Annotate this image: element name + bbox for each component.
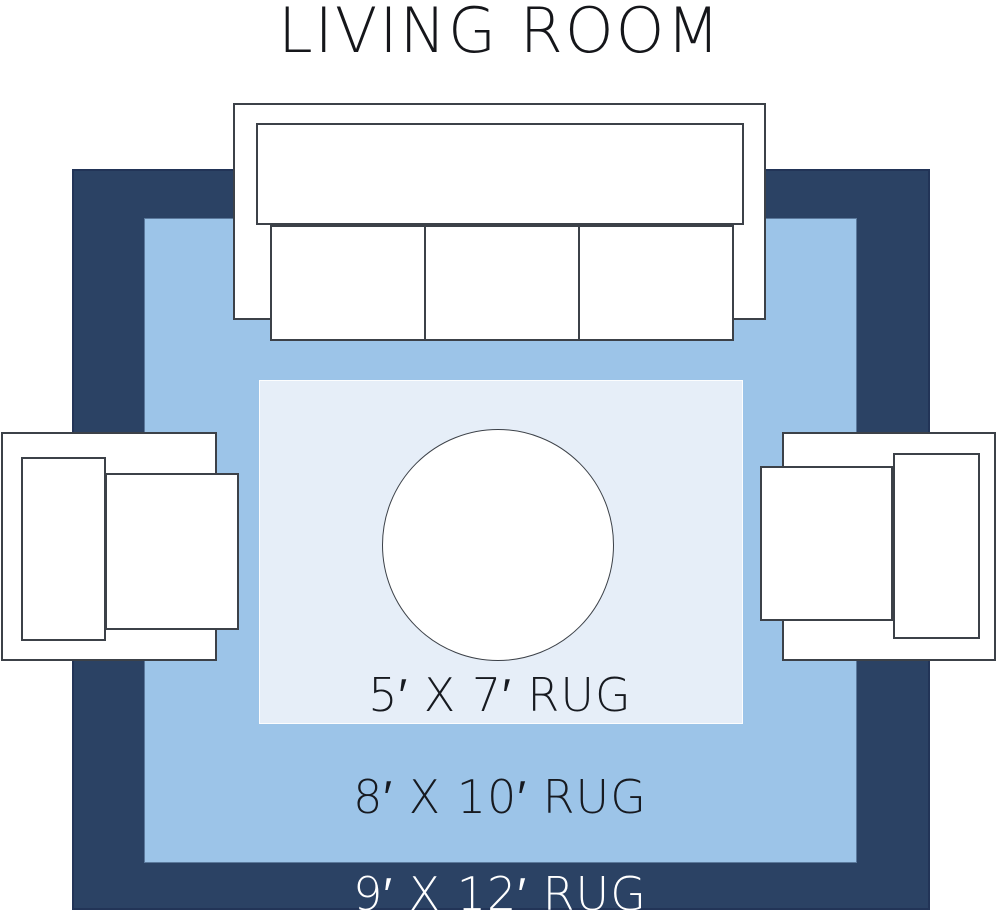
armchair-left-back-cushion [21,457,106,641]
rug-9x12-label: 9′ X 12′ RUG [0,871,1000,916]
rug-5x7-label: 5′ X 7′ RUG [0,672,1000,718]
sofa-seat-cushion-right [578,225,734,341]
living-room-rug-size-diagram: LIVING ROOM 5′ X 7′ RUG 8′ X 10′ RUG 9′ … [0,0,1000,916]
armchair-right-back-cushion [893,453,980,639]
rug-8x10-label: 8′ X 10′ RUG [0,774,1000,820]
armchair-left-seat-cushion [105,473,239,630]
round-coffee-table [382,429,614,661]
sofa-seat-cushions [270,225,734,341]
armchair-right-seat-cushion [760,466,893,621]
sofa-back-cushion [256,123,744,225]
sofa-seat-cushion-left [270,225,426,341]
page-title: LIVING ROOM [0,0,1000,62]
sofa-seat-cushion-middle [424,225,580,341]
